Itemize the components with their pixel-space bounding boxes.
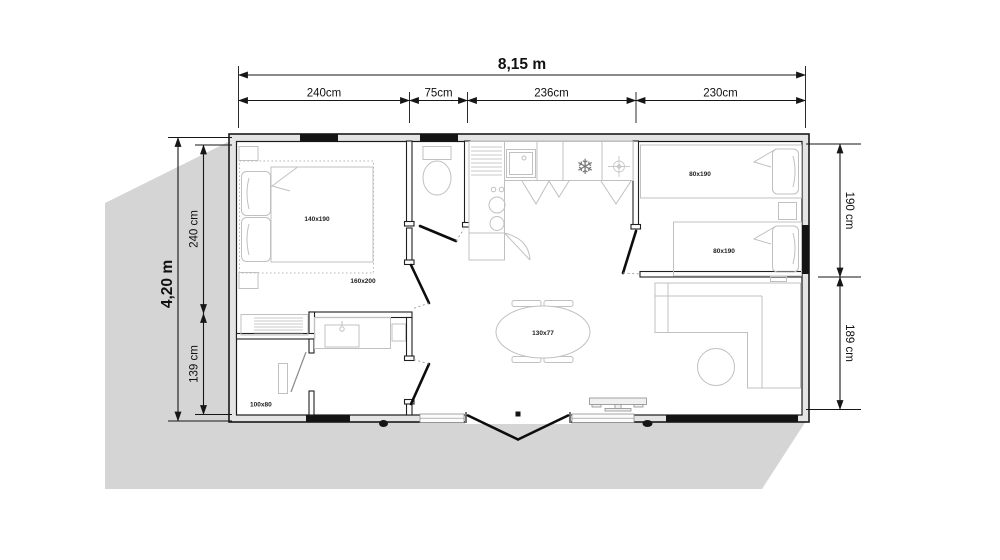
floor-plan-drawing: 140x190 160x200 100x80 (0, 0, 1000, 560)
master-bed-size-label: 140x190 (304, 216, 330, 223)
dim-right-seg-2: 189 cm (843, 324, 855, 362)
window-living-bottom (666, 415, 798, 422)
single-bed-size-label: 80x190 (689, 171, 711, 178)
dim-top-seg-2: 75cm (424, 88, 452, 100)
floor-plan-page: 140x190 160x200 100x80 (0, 0, 1000, 560)
threshold-marker (643, 420, 653, 427)
window-bedroom1-top (300, 134, 338, 142)
window-frame-left-of-door (420, 414, 464, 423)
single-bed-size-label: 80x190 (713, 248, 735, 255)
master-bed-option-label: 160x200 (350, 278, 376, 285)
fridge-snowflake-icon: ❄ (576, 155, 594, 179)
dim-top-seg-3: 236cm (534, 88, 569, 100)
round-side-table (698, 349, 735, 386)
window-wc-top (420, 134, 458, 142)
window-frame-right-of-door (572, 414, 634, 423)
dim-top-seg-1: 240cm (307, 88, 342, 100)
shower-size-label: 100x80 (250, 402, 272, 409)
threshold-marker (379, 420, 388, 427)
dim-left-total: 4,20 m (159, 260, 176, 308)
dining-table-size-label: 130x77 (532, 330, 554, 337)
dim-top-seg-4: 230cm (703, 88, 738, 100)
window-bathroom-bottom (306, 415, 350, 422)
window-bedroom2-right (802, 225, 809, 274)
dim-left-seg-1: 240 cm (189, 210, 201, 248)
dim-left-seg-2: 139 cm (189, 345, 201, 383)
dim-top-total: 8,15 m (498, 56, 546, 73)
dim-right-seg-1: 190 cm (843, 192, 855, 230)
